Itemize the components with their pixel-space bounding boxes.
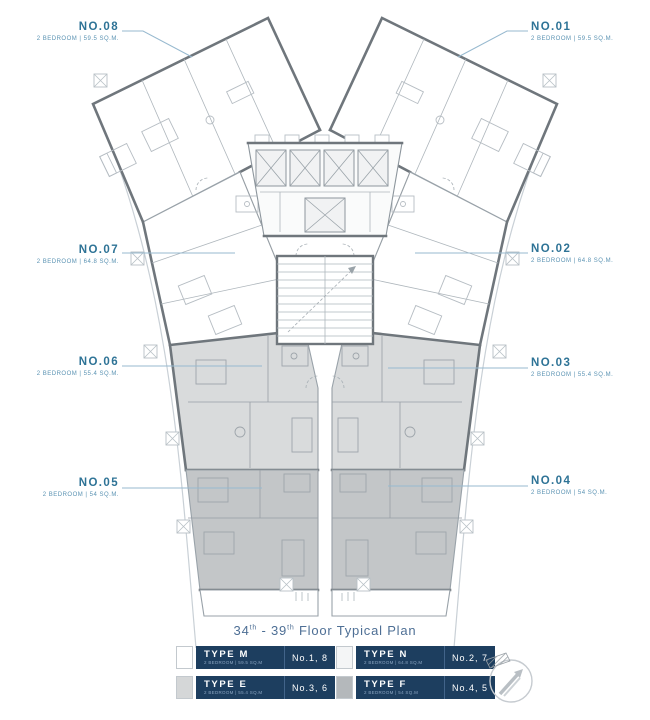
legend-item-type-n: TYPE N 2 BEDROOM | 64.8 SQ.M No.2, 7: [336, 646, 495, 669]
legend-swatch: [176, 646, 193, 669]
unit-label-no06: NO.06 2 BEDROOM | 55.4 SQ.M.: [0, 356, 119, 378]
legend-swatch: [336, 676, 353, 699]
plan-title: 34th - 39th Floor Typical Plan: [0, 623, 650, 638]
unit-label-no08: NO.08 2 BEDROOM | 59.5 SQ.M.: [0, 21, 119, 43]
unit-spec: 2 BEDROOM | 59.5 SQ.M.: [0, 36, 119, 43]
unit-spec: 2 BEDROOM | 54 SQ.M.: [531, 490, 650, 497]
legend-type-label: TYPE N: [364, 650, 438, 660]
unit-spec: 2 BEDROOM | 59.5 SQ.M.: [531, 36, 650, 43]
unit-label-no07: NO.07 2 BEDROOM | 64.8 SQ.M.: [0, 244, 119, 266]
legend-spec-label: 2 BEDROOM | 55.4 SQ.M: [204, 690, 278, 696]
unit-label-no01: NO.01 2 BEDROOM | 59.5 SQ.M.: [531, 21, 650, 43]
legend-units-label: No.1, 8: [285, 646, 335, 669]
legend-spec-label: 2 BEDROOM | 64.8 SQ.M: [364, 660, 438, 666]
legend-swatch: [336, 646, 353, 669]
unit-number: NO.08: [0, 21, 119, 33]
legend-item-type-f: TYPE F 2 BEDROOM | 54 SQ.M No.4, 5: [336, 676, 495, 699]
unit-label-no04: NO.04 2 BEDROOM | 54 SQ.M.: [531, 475, 650, 497]
legend-type-label: TYPE M: [204, 650, 278, 660]
unit-number: NO.06: [0, 356, 119, 368]
unit-number: NO.03: [531, 357, 650, 369]
legend-type-label: TYPE E: [204, 680, 278, 690]
unit-number: NO.01: [531, 21, 650, 33]
legend-spec-label: 2 BEDROOM | 54 SQ.M: [364, 690, 438, 696]
legend-item-type-e: TYPE E 2 BEDROOM | 55.4 SQ.M No.3, 6: [176, 676, 335, 699]
unit-spec: 2 BEDROOM | 54 SQ.M.: [0, 492, 119, 499]
legend-swatch: [176, 676, 193, 699]
unit-label-no03: NO.03 2 BEDROOM | 55.4 SQ.M.: [531, 357, 650, 379]
legend-item-type-m: TYPE M 2 BEDROOM | 59.5 SQ.M No.1, 8: [176, 646, 335, 669]
legend-type-label: TYPE F: [364, 680, 438, 690]
unit-spec: 2 BEDROOM | 64.8 SQ.M.: [531, 258, 650, 265]
unit-number: NO.07: [0, 244, 119, 256]
north-compass-icon: [480, 650, 542, 712]
unit-number: NO.05: [0, 477, 119, 489]
unit-spec: 2 BEDROOM | 55.4 SQ.M.: [531, 372, 650, 379]
unit-number: NO.04: [531, 475, 650, 487]
legend-spec-label: 2 BEDROOM | 59.5 SQ.M: [204, 660, 278, 666]
floor-plan-page: NO.08 2 BEDROOM | 59.5 SQ.M. NO.01 2 BED…: [0, 0, 650, 720]
unit-label-no05: NO.05 2 BEDROOM | 54 SQ.M.: [0, 477, 119, 499]
unit-spec: 2 BEDROOM | 64.8 SQ.M.: [0, 259, 119, 266]
unit-spec: 2 BEDROOM | 55.4 SQ.M.: [0, 371, 119, 378]
unit-number: NO.02: [531, 243, 650, 255]
legend-units-label: No.3, 6: [285, 676, 335, 699]
unit-label-no02: NO.02 2 BEDROOM | 64.8 SQ.M.: [531, 243, 650, 265]
